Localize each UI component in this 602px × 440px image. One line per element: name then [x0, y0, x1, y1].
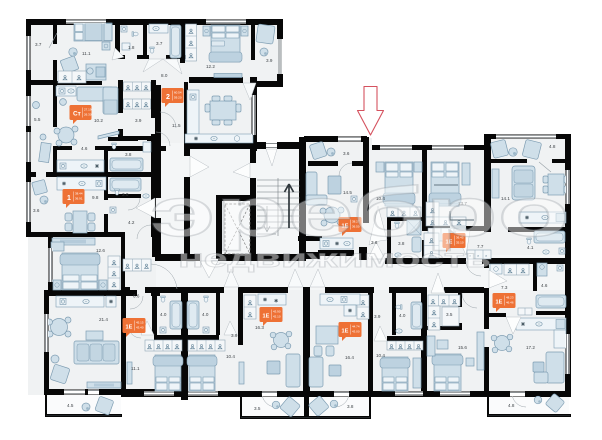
svg-text:1Е: 1Е: [126, 325, 133, 331]
svg-text:3.9: 3.9: [266, 58, 273, 63]
svg-text:43.00: 43.00: [352, 330, 360, 334]
svg-text:1: 1: [67, 195, 71, 202]
svg-text:45.15: 45.15: [136, 321, 144, 325]
svg-text:1.8: 1.8: [128, 45, 135, 50]
svg-text:38.44: 38.44: [75, 192, 83, 196]
svg-text:3.8: 3.8: [125, 152, 132, 157]
svg-text:16.3: 16.3: [255, 325, 264, 330]
svg-text:3.5: 3.5: [446, 312, 453, 317]
svg-text:1Е: 1Е: [263, 314, 270, 320]
svg-text:2: 2: [166, 94, 170, 101]
svg-text:11.5: 11.5: [172, 123, 181, 128]
svg-text:недвижимость: недвижимость: [178, 245, 491, 273]
svg-text:1Е: 1Е: [342, 329, 349, 335]
svg-text:15.6: 15.6: [458, 345, 467, 350]
svg-text:12.6: 12.6: [96, 248, 105, 253]
svg-text:3.7: 3.7: [35, 42, 42, 47]
svg-text:4.0: 4.0: [160, 312, 167, 317]
svg-text:4.2: 4.2: [128, 220, 135, 225]
svg-text:27.19: 27.19: [84, 108, 92, 112]
svg-text:10.4: 10.4: [376, 353, 385, 358]
svg-text:4.0: 4.0: [399, 313, 406, 318]
svg-text:21.4: 21.4: [99, 317, 108, 322]
svg-text:3.0: 3.0: [122, 192, 129, 197]
svg-text:3.9: 3.9: [231, 333, 238, 338]
svg-text:3.9: 3.9: [374, 314, 381, 319]
svg-text:4.5: 4.5: [67, 403, 74, 408]
svg-text:3.7: 3.7: [156, 41, 163, 46]
svg-text:46.46: 46.46: [506, 301, 514, 305]
svg-text:5.5: 5.5: [34, 117, 41, 122]
svg-text:3.6: 3.6: [343, 151, 350, 156]
svg-text:эребро: эребро: [150, 173, 570, 251]
svg-text:8.0: 8.0: [161, 73, 168, 78]
svg-text:36.91: 36.91: [75, 197, 83, 201]
svg-text:4.8: 4.8: [549, 144, 556, 149]
svg-text:3.6: 3.6: [33, 208, 40, 213]
svg-text:3.8: 3.8: [347, 404, 354, 409]
svg-text:26.30: 26.30: [84, 113, 92, 117]
svg-text:43.90: 43.90: [273, 310, 281, 314]
svg-text:17.2: 17.2: [526, 345, 535, 350]
svg-text:11.1: 11.1: [131, 366, 140, 371]
svg-text:Ст: Ст: [73, 111, 81, 118]
svg-text:3.9: 3.9: [135, 118, 142, 123]
svg-text:42.10: 42.10: [273, 315, 281, 319]
svg-text:43.40: 43.40: [136, 326, 144, 330]
svg-text:4.6: 4.6: [541, 283, 548, 288]
svg-text:10.4: 10.4: [226, 354, 235, 359]
svg-text:4.8: 4.8: [508, 403, 515, 408]
svg-text:44.74: 44.74: [352, 325, 360, 329]
svg-text:10.2: 10.2: [94, 118, 103, 123]
svg-text:3.5: 3.5: [254, 406, 261, 411]
svg-text:7.3: 7.3: [501, 285, 508, 290]
svg-text:4.6: 4.6: [81, 146, 88, 151]
svg-text:4.0: 4.0: [202, 312, 209, 317]
svg-text:6.6: 6.6: [133, 294, 140, 299]
svg-text:59.20: 59.20: [174, 96, 182, 100]
svg-text:12.2: 12.2: [206, 64, 215, 69]
svg-text:11.1: 11.1: [82, 51, 91, 56]
svg-text:1Е: 1Е: [496, 300, 503, 306]
svg-text:16.4: 16.4: [345, 355, 354, 360]
svg-text:60.54: 60.54: [174, 91, 182, 95]
svg-text:✱: ✱: [274, 299, 278, 305]
svg-text:9.8: 9.8: [92, 195, 99, 200]
svg-text:48.23: 48.23: [506, 296, 514, 300]
